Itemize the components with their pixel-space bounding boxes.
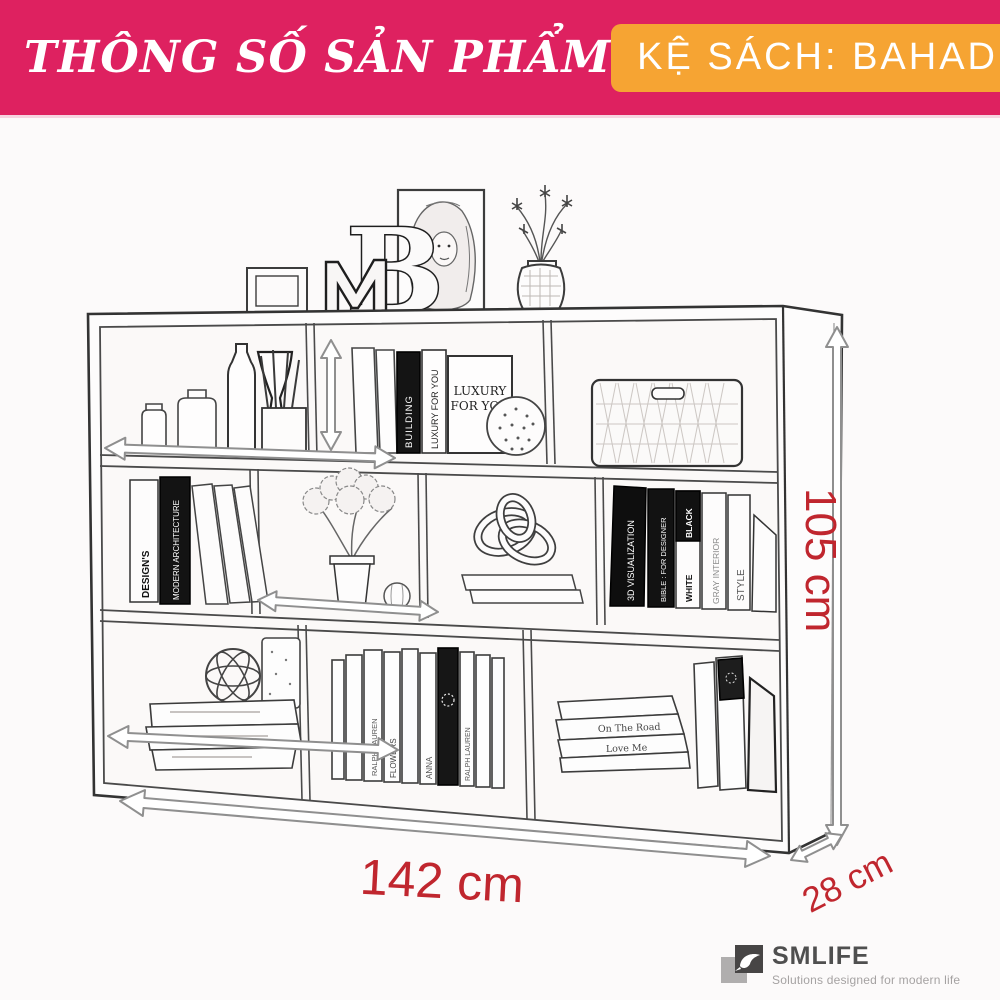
flower-blossoms (512, 185, 572, 234)
brand-tagline: Solutions designed for modern life (772, 973, 960, 987)
cylinder-vase (262, 638, 300, 708)
header-banner: THÔNG SỐ SẢN PHẨM KỆ SÁCH: BAHADUR (0, 0, 1000, 118)
white-book (376, 350, 397, 453)
book-spine-anna: ANNA (425, 756, 434, 779)
book-spine-style: STYLE (736, 569, 747, 601)
book-spine-love-me: Love Me (606, 743, 648, 755)
svg-text:WHITE: WHITE (684, 574, 694, 602)
dimension-width-label: 142 cm (359, 848, 526, 915)
product-badge: KỆ SÁCH: BAHADUR (611, 24, 1000, 92)
flower-vase (512, 185, 572, 309)
standing-book (694, 662, 718, 788)
book-spine-on-the-road: On The Road (598, 722, 661, 735)
brand-logo: SMLIFE Solutions designed for modern lif… (720, 942, 960, 988)
standing-book-patterned (716, 656, 746, 790)
leaning-book (748, 678, 776, 792)
wine-bottle (228, 344, 255, 452)
coral-ball (487, 397, 545, 455)
brand-name: SMLIFE (772, 944, 960, 969)
book-spine-designs: DESIGN'S (141, 550, 152, 598)
bookshelf-illustration: B (0, 0, 1000, 1000)
milk-jug (178, 390, 216, 452)
book-spine-gray-interior: GRAY INTERIOR (711, 538, 721, 604)
svg-text:LUXURY: LUXURY (454, 384, 508, 398)
white-book (352, 348, 378, 453)
book-spine-3d-visualization: 3D VISUALIZATION (626, 520, 636, 601)
standing-books: RALPH LAUREN FLOWERS ANNA RALPH LAUREN (332, 648, 504, 788)
book-spine-ralph-lauren: RALPH LAUREN (465, 727, 472, 781)
book-stack-right: On The Road Love Me (556, 696, 690, 772)
book-spine-building: BUILDING (404, 395, 415, 448)
book-spine-luxury: LUXURY FOR YOU (430, 369, 440, 449)
frame-decor (247, 268, 307, 313)
wicker-basket (592, 380, 742, 466)
smlife-logo-icon (720, 942, 766, 988)
book-white-black: BLACK WHITE (676, 491, 700, 608)
book-spine-modern-architecture: MODERN ARCHITECTURE (172, 500, 181, 600)
dimension-height-label: 105 cm (795, 488, 845, 632)
book-spine-bible: BIBLE : FOR DESIGNER (659, 517, 668, 602)
page-title: THÔNG SỐ SẢN PHẨM (24, 32, 611, 83)
svg-text:BLACK: BLACK (684, 507, 694, 538)
